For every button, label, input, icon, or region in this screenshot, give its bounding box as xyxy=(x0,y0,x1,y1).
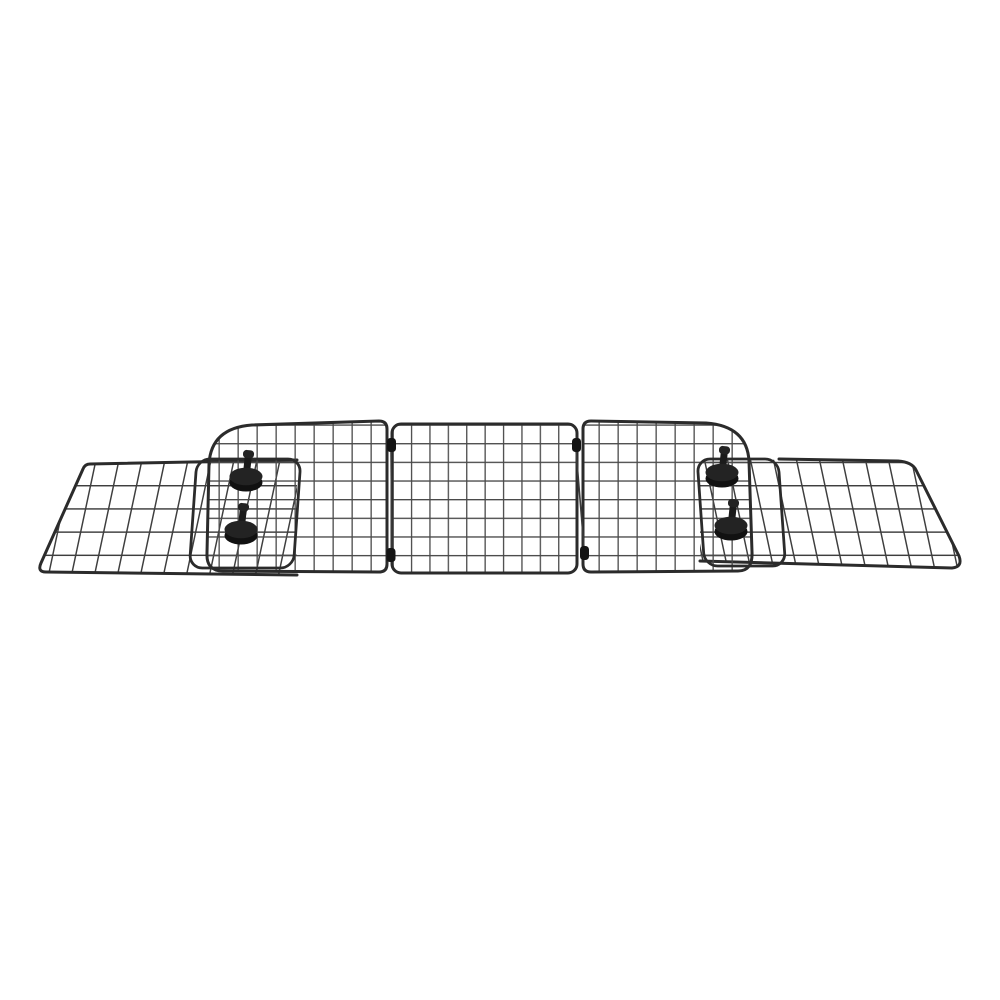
right-main-mesh xyxy=(583,421,752,572)
right-main-panel xyxy=(583,421,752,572)
hinge-left-top xyxy=(387,438,396,452)
product-photo xyxy=(0,0,1000,1000)
hinge-left-bottom xyxy=(387,548,396,562)
hinge-right-bottom xyxy=(580,546,589,560)
canvas xyxy=(0,0,1000,1000)
center-panel xyxy=(392,424,577,573)
pet-barrier-illustration xyxy=(0,0,1000,1000)
hinge-right-top xyxy=(572,438,581,452)
center-mesh xyxy=(392,424,577,573)
left-hinge-rod xyxy=(391,450,392,550)
